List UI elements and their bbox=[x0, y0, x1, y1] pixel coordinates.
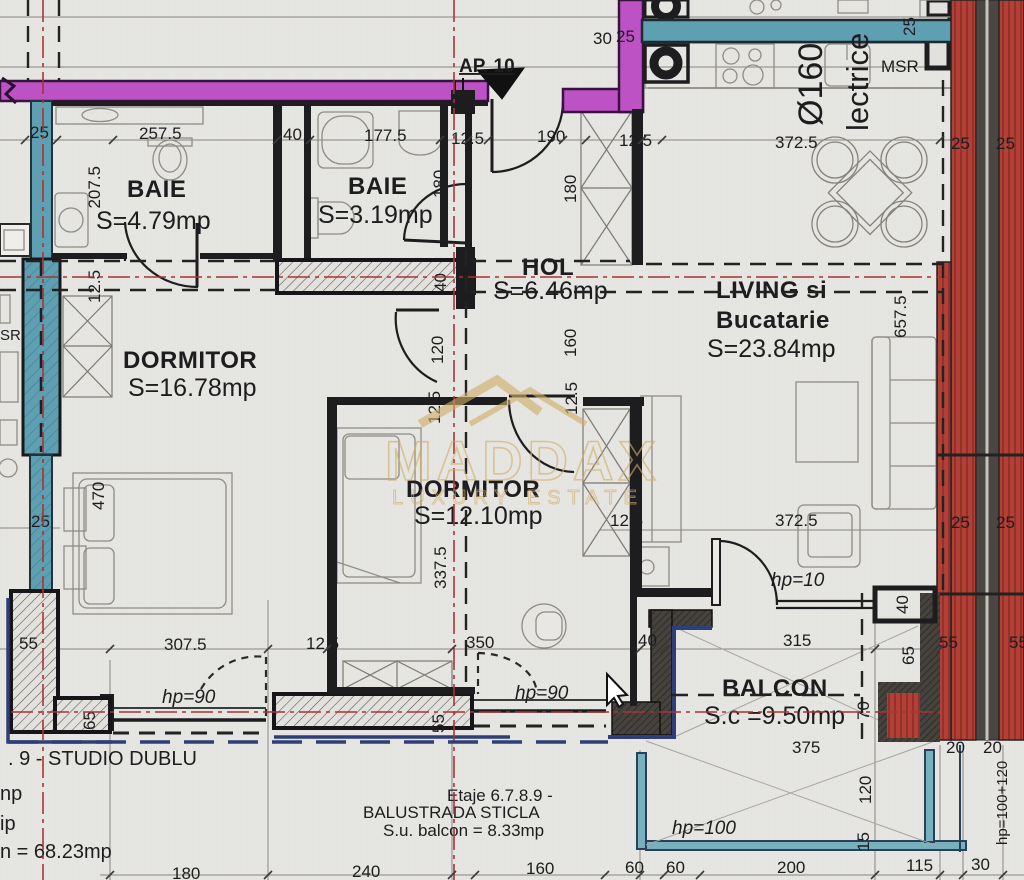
svg-text:25: 25 bbox=[951, 134, 970, 153]
svg-text:hp=90: hp=90 bbox=[515, 683, 569, 704]
svg-text:12.5: 12.5 bbox=[619, 131, 652, 150]
svg-text:60: 60 bbox=[666, 858, 685, 877]
svg-text:S.c =9.50mp: S.c =9.50mp bbox=[704, 702, 845, 730]
svg-text:207.5: 207.5 bbox=[85, 166, 104, 209]
svg-text:np: np bbox=[0, 783, 22, 805]
svg-text:470: 470 bbox=[89, 482, 108, 510]
svg-text:hp=100+120: hp=100+120 bbox=[994, 761, 1011, 845]
svg-text:307.5: 307.5 bbox=[164, 635, 207, 654]
svg-text:hp=100: hp=100 bbox=[672, 818, 736, 839]
svg-text:257.5: 257.5 bbox=[139, 124, 182, 143]
svg-text:190: 190 bbox=[537, 127, 565, 146]
svg-text:337.5: 337.5 bbox=[431, 546, 450, 589]
svg-text:25: 25 bbox=[996, 134, 1015, 153]
svg-text:DORMITOR: DORMITOR bbox=[123, 347, 257, 374]
svg-text:S=23.84mp: S=23.84mp bbox=[707, 335, 836, 363]
svg-text:BALUSTRADA STICLA: BALUSTRADA STICLA bbox=[363, 803, 540, 822]
svg-text:240: 240 bbox=[352, 862, 380, 880]
svg-text:LIVING si: LIVING si bbox=[716, 277, 827, 304]
svg-text:25: 25 bbox=[996, 513, 1015, 532]
svg-text:S=4.79mp: S=4.79mp bbox=[96, 207, 211, 235]
svg-text:40: 40 bbox=[431, 273, 450, 292]
svg-text:n = 68.23mp: n = 68.23mp bbox=[0, 841, 112, 863]
svg-text:657.5: 657.5 bbox=[891, 295, 910, 338]
svg-text:S.u. balcon = 8.33mp: S.u. balcon = 8.33mp bbox=[383, 821, 544, 840]
svg-text:15: 15 bbox=[854, 832, 873, 851]
svg-text:160: 160 bbox=[561, 329, 580, 357]
svg-text:65: 65 bbox=[80, 711, 99, 730]
svg-text:Bucatarie: Bucatarie bbox=[716, 307, 830, 334]
svg-text:SR: SR bbox=[0, 327, 21, 344]
svg-text:120: 120 bbox=[428, 336, 447, 364]
svg-text:lectrice: lectrice bbox=[840, 33, 875, 131]
svg-text:55: 55 bbox=[939, 633, 958, 652]
svg-text:30: 30 bbox=[593, 29, 612, 48]
svg-text:12.5: 12.5 bbox=[610, 511, 643, 530]
svg-text:375: 375 bbox=[792, 738, 820, 757]
svg-text:177.5: 177.5 bbox=[364, 126, 407, 145]
svg-text:hp=10: hp=10 bbox=[771, 570, 825, 591]
svg-text:BALCON: BALCON bbox=[722, 675, 828, 702]
svg-text:Ø160: Ø160 bbox=[792, 43, 830, 126]
svg-text:350: 350 bbox=[466, 633, 494, 652]
svg-text:40: 40 bbox=[283, 125, 302, 144]
svg-text:BAIE: BAIE bbox=[127, 176, 186, 203]
svg-text:315: 315 bbox=[783, 631, 811, 650]
svg-text:MADDAX: MADDAX bbox=[385, 429, 661, 492]
svg-text:12.5: 12.5 bbox=[451, 129, 484, 148]
svg-text:55: 55 bbox=[1009, 633, 1024, 652]
svg-text:AP. 10: AP. 10 bbox=[459, 56, 515, 77]
svg-text:180: 180 bbox=[561, 175, 580, 203]
svg-text:70: 70 bbox=[854, 701, 873, 720]
svg-text:160: 160 bbox=[526, 859, 554, 878]
svg-text:20: 20 bbox=[946, 738, 965, 757]
svg-text:180: 180 bbox=[430, 170, 449, 198]
svg-text:12.5: 12.5 bbox=[85, 270, 104, 303]
svg-text:30: 30 bbox=[971, 855, 990, 874]
svg-text:55: 55 bbox=[429, 714, 448, 733]
svg-text:S=3.19mp: S=3.19mp bbox=[318, 201, 433, 229]
svg-text:LUXURY ESTATE: LUXURY ESTATE bbox=[392, 487, 644, 509]
svg-text:200: 200 bbox=[777, 858, 805, 877]
svg-text:25: 25 bbox=[30, 123, 49, 142]
svg-text:25: 25 bbox=[31, 512, 50, 531]
svg-text:25: 25 bbox=[951, 513, 970, 532]
svg-text:ip: ip bbox=[0, 813, 16, 835]
svg-text:hp=90: hp=90 bbox=[162, 687, 216, 708]
svg-text:. 9 - STUDIO DUBLU: . 9 - STUDIO DUBLU bbox=[8, 748, 197, 770]
svg-text:12.5: 12.5 bbox=[306, 634, 339, 653]
svg-text:65: 65 bbox=[899, 646, 918, 665]
svg-text:20: 20 bbox=[983, 738, 1002, 757]
svg-text:180: 180 bbox=[172, 864, 200, 880]
svg-text:25: 25 bbox=[616, 27, 635, 46]
svg-text:372.5: 372.5 bbox=[775, 511, 818, 530]
svg-text:55: 55 bbox=[19, 634, 38, 653]
svg-text:S=16.78mp: S=16.78mp bbox=[128, 374, 257, 402]
svg-text:BAIE: BAIE bbox=[348, 173, 407, 200]
svg-text:115: 115 bbox=[906, 856, 933, 875]
svg-text:120: 120 bbox=[856, 776, 875, 804]
svg-text:25: 25 bbox=[900, 17, 919, 36]
svg-text:MSR: MSR bbox=[881, 57, 919, 76]
svg-text:40: 40 bbox=[893, 595, 912, 614]
svg-text:372.5: 372.5 bbox=[775, 133, 818, 152]
